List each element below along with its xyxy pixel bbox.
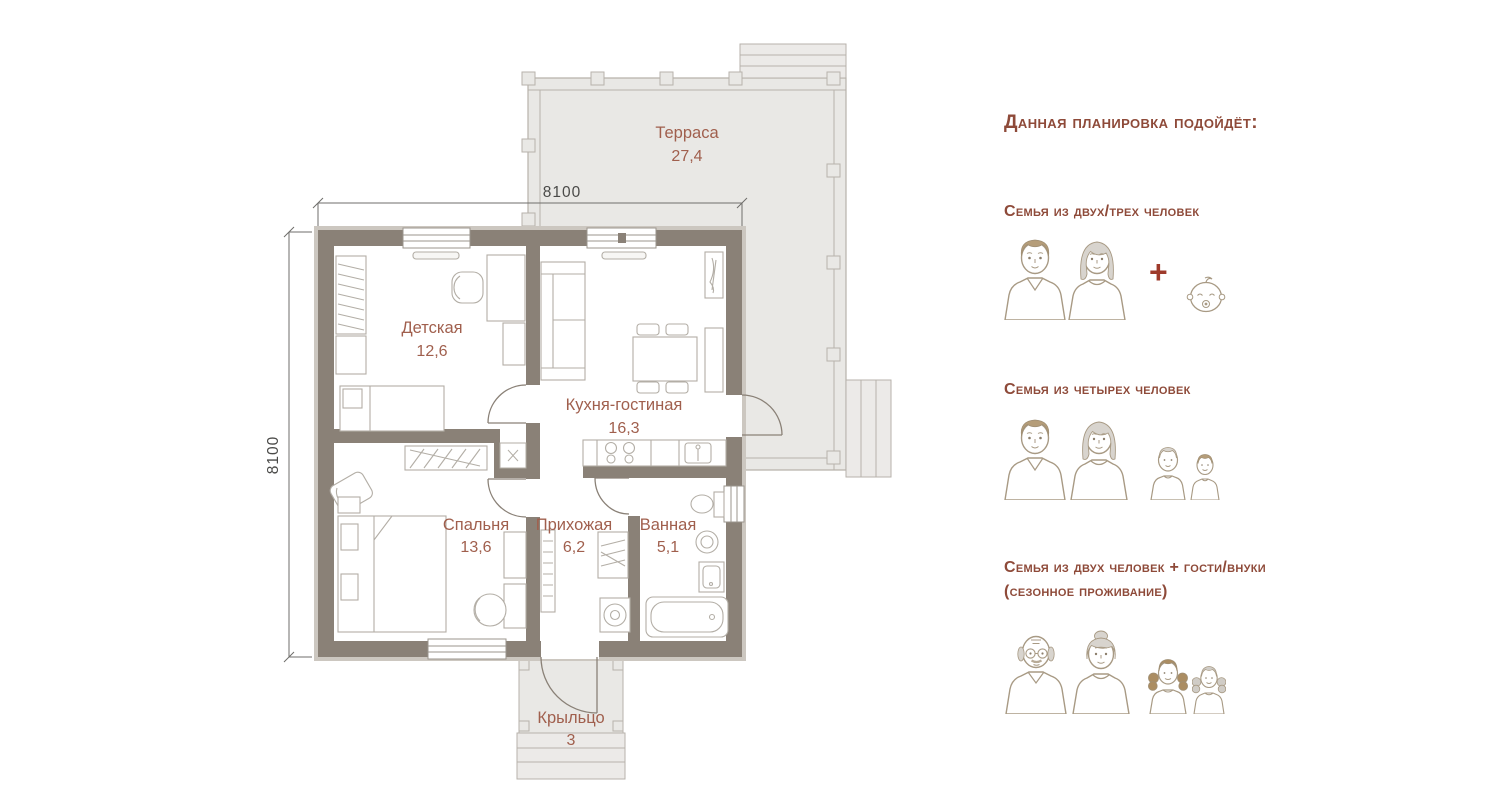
svg-text:Крыльцо: Крыльцо	[537, 709, 604, 727]
granddaughter-icon	[1192, 660, 1226, 714]
granddaughter-icon	[1148, 652, 1188, 714]
svg-text:Кухня-гостиная: Кухня-гостиная	[566, 396, 683, 414]
room-label-kids-room: Детская 12,6	[401, 319, 462, 360]
door-kids-room	[488, 385, 526, 423]
page: 8100 8100 Терраса 27,4 Детская 12,6 Кухн…	[0, 0, 1498, 802]
suitability-panel: Данная планировка подойдёт: Семья из дву…	[1004, 0, 1334, 802]
adult-woman-icon	[1068, 232, 1126, 320]
kids-room-furniture	[336, 252, 525, 431]
svg-text:6,2: 6,2	[563, 539, 585, 556]
option-family-four-icons	[1004, 410, 1334, 500]
room-label-kitchen: Кухня-гостиная 16,3	[566, 396, 683, 437]
room-label-bathroom: Ванная 5,1	[640, 516, 697, 556]
option-grandparents-icons	[1004, 622, 1334, 714]
child-boy-icon	[1150, 442, 1186, 500]
window-bathroom	[724, 486, 744, 522]
option-grandparents-label-2: (сезонное проживание)	[1004, 580, 1168, 604]
bathroom-furniture	[646, 492, 728, 637]
svg-text:27,4: 27,4	[671, 148, 702, 165]
dimension-left-value: 8100	[265, 436, 282, 474]
svg-text:12,6: 12,6	[416, 343, 447, 360]
adult-man-icon	[1004, 412, 1066, 500]
window-kitchen	[587, 228, 656, 248]
svg-text:Терраса: Терраса	[655, 124, 719, 142]
dimension-left: 8100	[265, 227, 312, 662]
svg-text:5,1: 5,1	[657, 539, 679, 556]
closet	[500, 443, 526, 468]
option-couple-label: Семья из двух/трех человек	[1004, 200, 1199, 224]
svg-text:Спальня: Спальня	[443, 516, 509, 534]
terrace-steps-right	[846, 380, 891, 477]
door-bathroom	[595, 478, 629, 514]
option-grandparents-label: Семья из двух человек + гости/внуки	[1004, 556, 1266, 580]
option-family-four-label: Семья из четырех человек	[1004, 378, 1191, 402]
svg-text:Прихожая: Прихожая	[536, 516, 612, 534]
svg-text:Детская: Детская	[401, 319, 462, 337]
window-kids-room	[403, 228, 470, 248]
dimension-top-value: 8100	[543, 184, 581, 201]
panel-title: Данная планировка подойдёт:	[1004, 112, 1258, 134]
room-label-bedroom: Спальня 13,6	[443, 516, 509, 556]
svg-text:Ванная: Ванная	[640, 516, 697, 534]
plus-sign: +	[1149, 256, 1168, 288]
svg-text:3: 3	[567, 732, 576, 749]
baby-icon	[1184, 274, 1228, 316]
door-bedroom	[488, 479, 526, 517]
window-bedroom	[428, 639, 506, 659]
adult-man-icon	[1004, 232, 1066, 320]
adult-woman-icon	[1070, 412, 1128, 500]
grandfather-icon	[1004, 626, 1068, 714]
hallway-furniture	[541, 530, 630, 632]
option-couple-icons: +	[1004, 232, 1334, 320]
floor-plan: 8100 8100 Терраса 27,4 Детская 12,6 Кухн…	[0, 0, 960, 802]
svg-text:16,3: 16,3	[608, 420, 639, 437]
grandmother-icon	[1072, 626, 1130, 714]
svg-text:13,6: 13,6	[460, 539, 491, 556]
child-boy-icon	[1190, 450, 1220, 500]
